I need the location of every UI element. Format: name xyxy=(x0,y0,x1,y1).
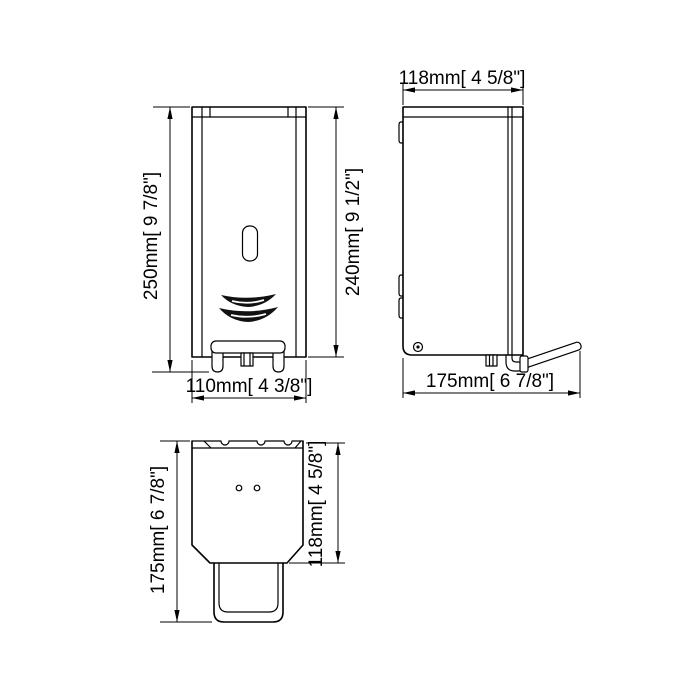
top-pushbar-inner xyxy=(219,563,278,612)
top-depth-label: 175mm[ 6 7/8"] xyxy=(148,466,169,594)
side-depth-label: 118mm[ 4 5/8"] xyxy=(399,68,526,89)
dim-front-cover-height: 240mm[ 9 1/2"] xyxy=(308,107,364,357)
dim-top-depth: 175mm[ 6 7/8"] xyxy=(148,441,212,622)
dimension-drawing: 250mm[ 9 7/8"] 240mm[ 9 1/2"] 110mm[ 4 3… xyxy=(0,0,700,700)
side-view xyxy=(399,107,581,372)
sensor-hole-right xyxy=(254,485,260,491)
push-bar xyxy=(211,341,285,353)
spout-front xyxy=(241,353,253,366)
top-pushbar-outer xyxy=(214,563,283,622)
top-body-outline xyxy=(192,441,303,563)
top-view xyxy=(192,441,303,622)
sight-window xyxy=(243,226,258,261)
top-back-diagonal-right xyxy=(295,441,301,448)
top-back-diagonal-left xyxy=(204,441,211,448)
top-back-edge-notched xyxy=(192,441,303,445)
drawing-svg: 250mm[ 9 7/8"] 240mm[ 9 1/2"] 110mm[ 4 3… xyxy=(0,0,700,700)
sensor-hole-left xyxy=(236,485,242,491)
spout-side xyxy=(486,355,497,366)
front-cover-height-label: 240mm[ 9 1/2"] xyxy=(343,168,364,296)
front-view xyxy=(192,107,306,372)
side-total-depth-label: 175mm[ 6 7/8"] xyxy=(426,371,554,392)
lock-screw-center xyxy=(416,345,419,348)
top-body-depth-label: 118mm[ 4 5/8"] xyxy=(306,441,327,568)
elbow-outer xyxy=(506,355,521,371)
side-body-outline xyxy=(403,107,523,355)
push-lever-arm xyxy=(522,342,581,368)
dim-front-height: 250mm[ 9 7/8"] xyxy=(141,107,209,372)
lever-collar xyxy=(520,356,528,372)
crescent-lower xyxy=(219,307,278,322)
crescent-upper xyxy=(221,294,276,307)
front-height-label: 250mm[ 9 7/8"] xyxy=(141,172,162,300)
front-width-label: 110mm[ 4 3/8"] xyxy=(186,376,313,397)
dim-side-depth: 118mm[ 4 5/8"] xyxy=(399,68,526,105)
dimensions: 250mm[ 9 7/8"] 240mm[ 9 1/2"] 110mm[ 4 3… xyxy=(141,68,580,622)
dim-top-body-depth: 118mm[ 4 5/8"] xyxy=(289,441,345,568)
